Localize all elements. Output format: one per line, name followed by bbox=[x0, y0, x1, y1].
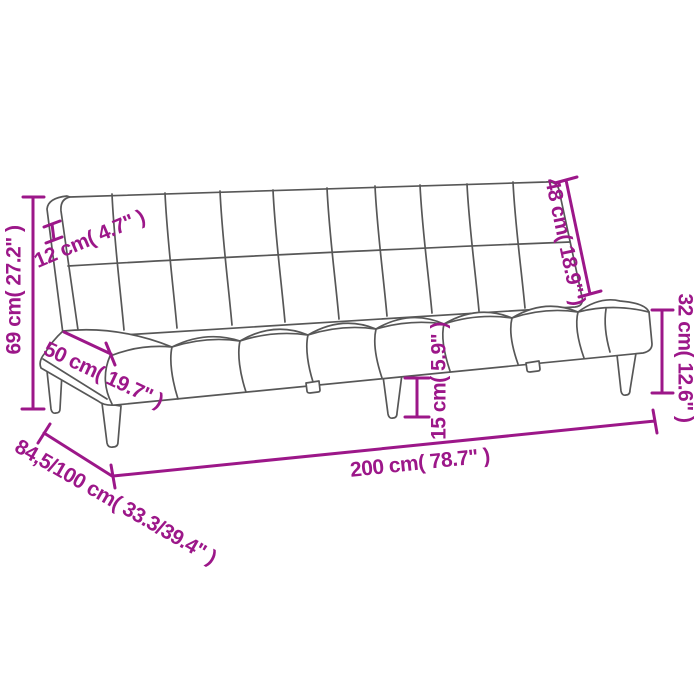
dimension-label-leg-height: 15 cm( 5.9" ) bbox=[428, 322, 451, 440]
dimension-label-seat-side-height: 32 cm( 12.6" ) bbox=[673, 293, 696, 422]
dimension-seat-side-height: 32 cm( 12.6" ) bbox=[652, 293, 696, 422]
dimension-label-overall-depth: 84,5/100 cm( 33.3/39.4" ) bbox=[11, 435, 220, 569]
dimension-overall-width: 200 cm( 78.7" ) bbox=[111, 410, 657, 488]
diagram-canvas: 69 cm( 27.2" ) 12 cm( 4.7" ) 48 cm( 18.9… bbox=[0, 0, 700, 700]
sofa-tab-left bbox=[306, 381, 320, 393]
sofa-leg-left-front bbox=[102, 403, 121, 447]
sofa-leg-right bbox=[617, 353, 636, 395]
sofa-tab-right bbox=[526, 361, 540, 372]
product-dimension-diagram: 69 cm( 27.2" ) 12 cm( 4.7" ) 48 cm( 18.9… bbox=[0, 0, 700, 700]
dimension-label-overall-height: 69 cm( 27.2" ) bbox=[3, 225, 26, 354]
dimension-line bbox=[405, 378, 429, 417]
dimension-overall-height: 69 cm( 27.2" ) bbox=[3, 197, 44, 409]
dimension-line bbox=[652, 310, 673, 393]
sofa-leg-middle bbox=[383, 374, 402, 418]
